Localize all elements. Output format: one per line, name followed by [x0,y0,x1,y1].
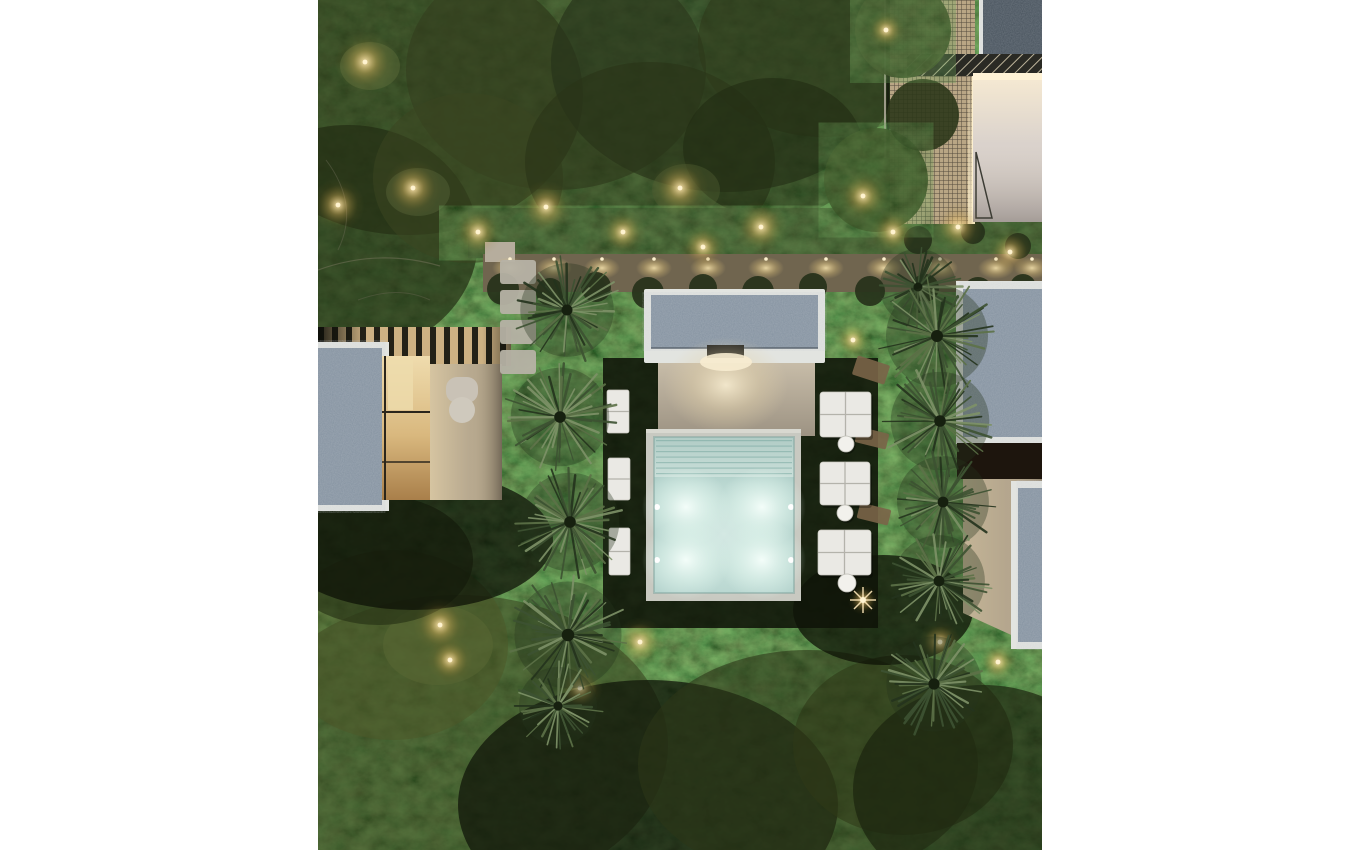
garden-light-core [363,60,368,65]
garden-light [870,209,916,255]
garden-light-core [438,623,443,628]
spiky-tree-center [934,415,946,427]
letterbox-left [0,0,318,850]
spiky-tree-center [564,516,576,528]
garden-light [519,180,572,233]
garden-light [335,32,396,93]
walkway-light-core [552,257,556,261]
garden-light-core [448,658,453,663]
garden-light [680,224,726,270]
garden-light-core [411,186,416,191]
garden-light [385,160,442,217]
dark-roof-speckle [983,0,1042,56]
walkway-light-core [882,257,886,261]
garden-light-core [884,28,889,33]
garden-light-core [621,230,626,235]
patio-led-strip [973,73,1042,80]
pool-pavilion [644,289,825,436]
walkway-light [636,257,672,279]
lounger [607,390,629,433]
walkway-light [748,257,784,279]
spiky-tree-leaf [515,522,564,523]
garden-light [453,207,502,256]
garden-light [867,11,905,49]
spiky-tree-center [931,330,943,342]
spiky-tree-center [934,576,945,587]
garden-light [834,321,872,359]
pool-coping-highlight [646,429,801,433]
terrace-armchair-seat [449,397,475,423]
garden-light [652,160,709,217]
daybed-group [820,462,872,508]
stepping-pad [500,260,536,284]
garden-light-core [544,205,549,210]
curtain-highlight [388,360,413,410]
letterbox-right [1042,0,1360,850]
lower-roof-speckle [1018,488,1042,642]
spiky-tree-leaf [558,679,559,703]
garden-light [979,643,1017,681]
dark-roof-trim [979,0,983,56]
lounger [608,458,630,500]
side-table-top [837,505,853,521]
garden-light-core [851,338,856,343]
garden-light-core [759,225,764,230]
spiky-tree-leaf [560,377,562,413]
garden-light-core [638,640,643,645]
daybed-group [820,392,873,440]
walkway-light-core [824,257,828,261]
garden-light-core [476,230,481,235]
right-daybeds [818,392,873,594]
spiky-tree-center [553,701,562,710]
screenshot-canvas: Night aerial render: villa garden with g… [0,0,1360,850]
side-table-top [838,436,854,452]
spiky-tree-leaf [934,635,935,680]
starburst-core [860,597,866,603]
garden-light [933,202,982,251]
garden-light [427,637,473,683]
sconce-hotspot [700,353,752,371]
left-roof-speckle [318,348,382,505]
spiky-tree-leaf [942,580,968,581]
garden-light [734,200,787,253]
spiky-tree-center [562,305,573,316]
garden-light-core [678,186,683,191]
walkway-light-core [600,257,604,261]
swimming-pool [642,429,806,601]
garden-light-core [336,203,341,208]
garden-light-core [701,245,706,250]
garden-light-core [956,225,961,230]
daybed-group [818,530,873,578]
sconce-glow [664,337,788,433]
patio-light-wash [973,80,1042,222]
stepping-pad [500,350,536,374]
walkway-light-core [764,257,768,261]
scene-svg: Night aerial render: villa garden with g… [318,0,1042,850]
spiky-tree-center [562,629,575,642]
garden-light-core [861,194,866,199]
aerial-photo: Night aerial render: villa garden with g… [318,0,1042,850]
spiky-tree-center [554,411,566,423]
spiky-tree-leaf [880,285,914,286]
spiky-tree-center [928,678,939,689]
garden-light-core [1008,250,1013,255]
ground-starburst-light [848,585,878,615]
walkway-light-core [652,257,656,261]
garden-light [600,209,646,255]
spiky-tree-center [938,497,949,508]
garden-light [987,229,1033,275]
garden-light-core [996,660,1001,665]
spiky-tree-leaf [569,468,570,517]
garden-light-core [891,230,896,235]
